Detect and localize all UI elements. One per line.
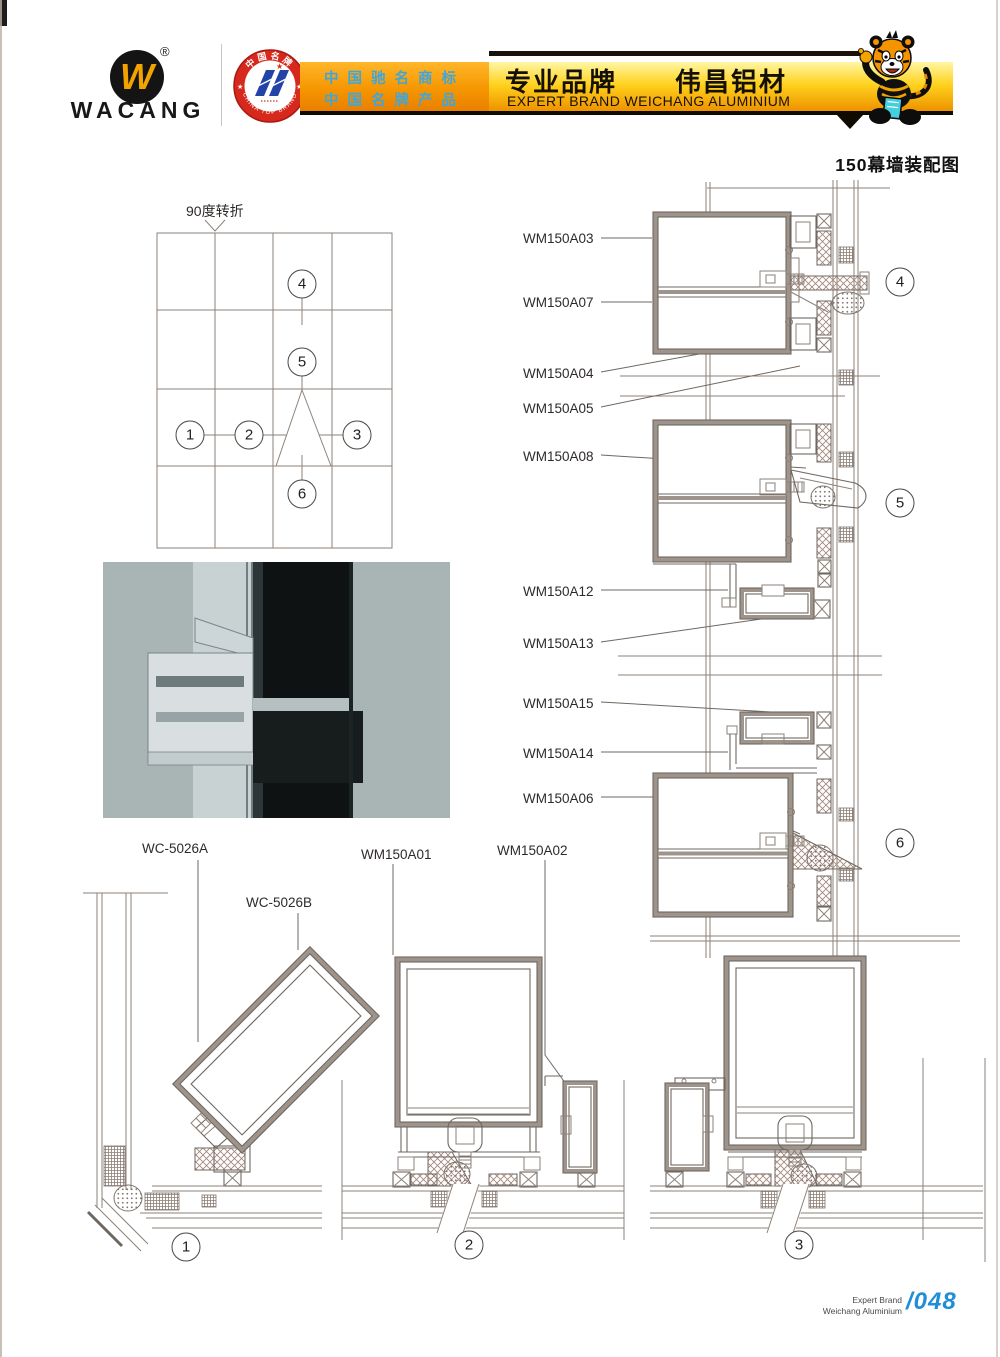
- part-label-wm150a03: WM150A03: [523, 231, 594, 246]
- china-top-brand-badge-icon: 中国名牌 CHINA TOP BRAND ★ ★ ★: [231, 46, 309, 126]
- footer-brand: Expert Brand Weichang Aluminium: [760, 1295, 902, 1316]
- footer-page-number: /048: [906, 1288, 957, 1316]
- detail-callout-6: 6: [886, 829, 915, 858]
- grid-callout-6: 6: [288, 480, 317, 509]
- detail-callout-2: 2: [455, 1231, 484, 1260]
- banner-right-english: EXPERT BRAND WEICHANG ALUMINIUM: [507, 93, 790, 109]
- part-label-wm150a08: WM150A08: [523, 449, 594, 464]
- svg-text:★: ★: [237, 83, 243, 91]
- catalog-page: .e{stroke:#6f6760;fill:none;stroke-width…: [0, 0, 1000, 1357]
- footer-brand-line2: Weichang Aluminium: [760, 1306, 902, 1317]
- detail-2-drawing: [393, 957, 597, 1234]
- part-label-wm150a07: WM150A07: [523, 295, 594, 310]
- detail-callout-5: 5: [886, 489, 915, 518]
- assembly-drawing: .e{stroke:#6f6760;fill:none;stroke-width…: [0, 0, 1000, 1357]
- banner-left-segment: 中国驰名商标 中国名牌产品: [300, 62, 489, 112]
- part-label-wm150a15: WM150A15: [523, 696, 594, 711]
- svg-text:★: ★: [276, 62, 283, 71]
- part-label-wc5026a: WC-5026A: [142, 841, 208, 856]
- part-label-wm150a04: WM150A04: [523, 366, 594, 381]
- banner-top-shadow: [489, 51, 861, 56]
- part-label-wm150a02: WM150A02: [497, 843, 568, 858]
- detail-3-drawing: [665, 956, 866, 1234]
- part-label-wm150a13: WM150A13: [523, 636, 594, 651]
- svg-text:W: W: [120, 56, 157, 97]
- banner-left-line1: 中国驰名商标: [300, 67, 489, 88]
- part-label-wm150a01: WM150A01: [361, 847, 432, 862]
- key-grid-diagram: [157, 220, 392, 548]
- grid-corner-label: 90度转折: [186, 201, 244, 221]
- detail-callout-1: 1: [172, 1233, 201, 1262]
- tiger-mascot-icon: [842, 24, 942, 126]
- part-label-wm150a14: WM150A14: [523, 746, 594, 761]
- grid-callout-5: 5: [288, 348, 317, 377]
- page-title: 150幕墙装配图: [600, 152, 960, 177]
- detail-1-drawing: [83, 893, 379, 1251]
- detail-callout-3: 3: [785, 1231, 814, 1260]
- part-label-wm150a12: WM150A12: [523, 584, 594, 599]
- detail-callout-4: 4: [886, 268, 915, 297]
- part-label-wc5026b: WC-5026B: [246, 895, 312, 910]
- footer-brand-line1: Expert Brand: [760, 1295, 902, 1306]
- grid-callout-1: 1: [176, 421, 205, 450]
- grid-callout-4: 4: [288, 270, 317, 299]
- grid-callout-2: 2: [235, 421, 264, 450]
- wc5026b-frame: [173, 947, 379, 1153]
- page-left-border: [0, 0, 2, 1357]
- header-divider: [221, 44, 222, 126]
- section-5-drawing: [653, 420, 866, 619]
- logo-wordmark: WACANG: [64, 97, 212, 124]
- registered-mark: ®: [160, 44, 170, 59]
- part-label-wm150a06: WM150A06: [523, 791, 594, 806]
- page-right-border: [996, 0, 998, 1357]
- grid-callout-3: 3: [343, 421, 372, 450]
- part-label-wm150a05: WM150A05: [523, 401, 594, 416]
- profile-photo: [103, 562, 450, 818]
- banner-left-line2: 中国名牌产品: [300, 89, 489, 110]
- section-6-drawing: [653, 712, 862, 921]
